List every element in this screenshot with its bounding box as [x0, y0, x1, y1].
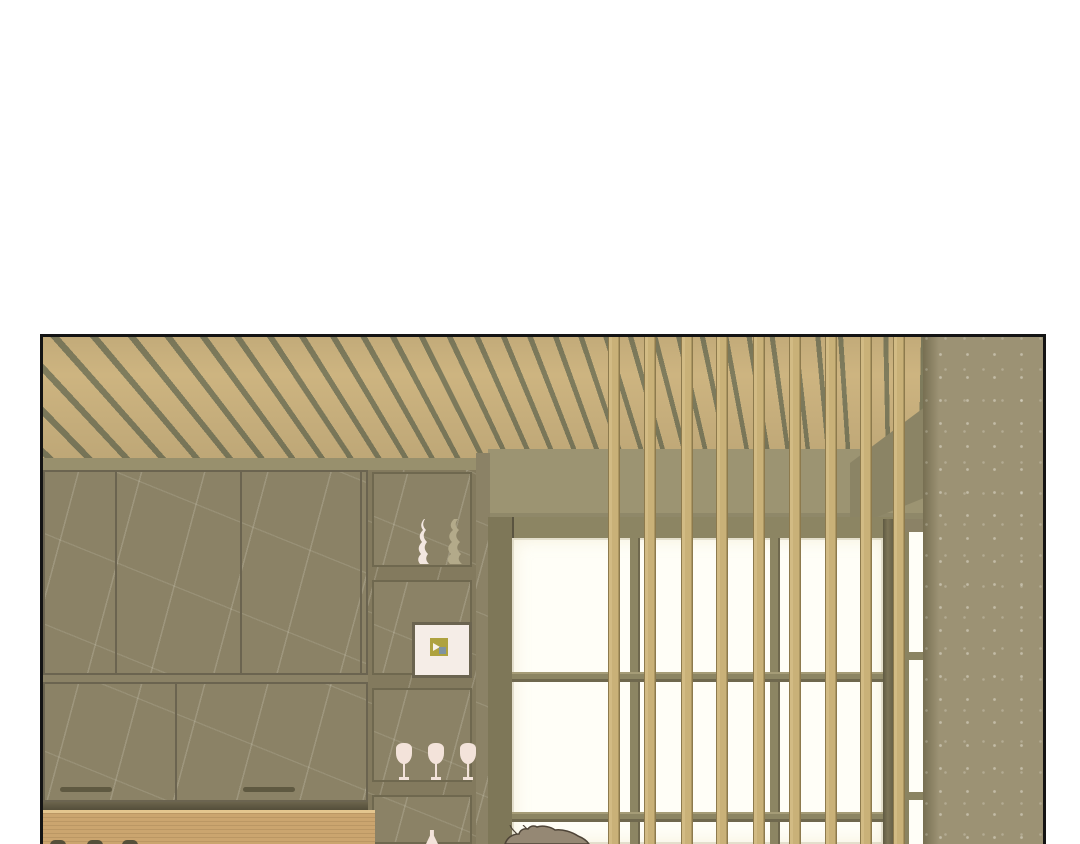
ceiling-slats: [43, 337, 930, 463]
window-mullion-horizontal: [512, 672, 883, 682]
counter-jar: [122, 840, 138, 844]
picture-frame: [412, 622, 472, 678]
window-mullion-vertical: [770, 538, 780, 844]
cabinet-divider: [175, 682, 177, 802]
wine-glass: [460, 743, 476, 780]
shelf-niche-vases: [372, 472, 472, 567]
character-hair: [503, 825, 593, 844]
wooden-counter: [43, 810, 375, 844]
lower-cabinets: [43, 682, 368, 802]
bottle: [426, 830, 438, 844]
window-pane-main: [512, 538, 883, 844]
cabinet-base-shadow: [43, 802, 375, 810]
artwork-square: [439, 647, 446, 654]
wavy-vase-dark: [440, 518, 464, 565]
window-mullion-vertical: [630, 538, 640, 844]
shelf-niche-bottle: [372, 795, 472, 844]
window-jamb: [488, 517, 514, 844]
window-corner-post: [883, 519, 895, 844]
cabinet-handle: [243, 787, 295, 792]
window-lintel: [488, 517, 895, 540]
window-mullion-horizontal: [512, 812, 883, 822]
page-background: [0, 0, 1080, 844]
shelf-column: [368, 470, 476, 844]
wine-glass: [396, 743, 412, 780]
side-wall: [923, 337, 1043, 844]
counter-jar: [50, 840, 66, 844]
cabinet-divider: [115, 470, 117, 675]
cabinet-divider: [240, 470, 242, 675]
comic-panel: [40, 334, 1046, 844]
artwork: [430, 638, 448, 656]
wavy-vase-light: [412, 518, 430, 565]
shelf-niche-glasses: [372, 688, 472, 782]
shelf-niche-art: [372, 580, 472, 675]
counter-jar: [87, 840, 103, 844]
side-window-mullion-horizontal: [895, 652, 923, 660]
wine-glass: [428, 743, 444, 780]
cabinet-divider: [360, 470, 362, 675]
upper-cabinets: [43, 470, 368, 675]
cabinet-handle: [60, 787, 112, 792]
side-window-mullion-horizontal: [895, 792, 923, 800]
